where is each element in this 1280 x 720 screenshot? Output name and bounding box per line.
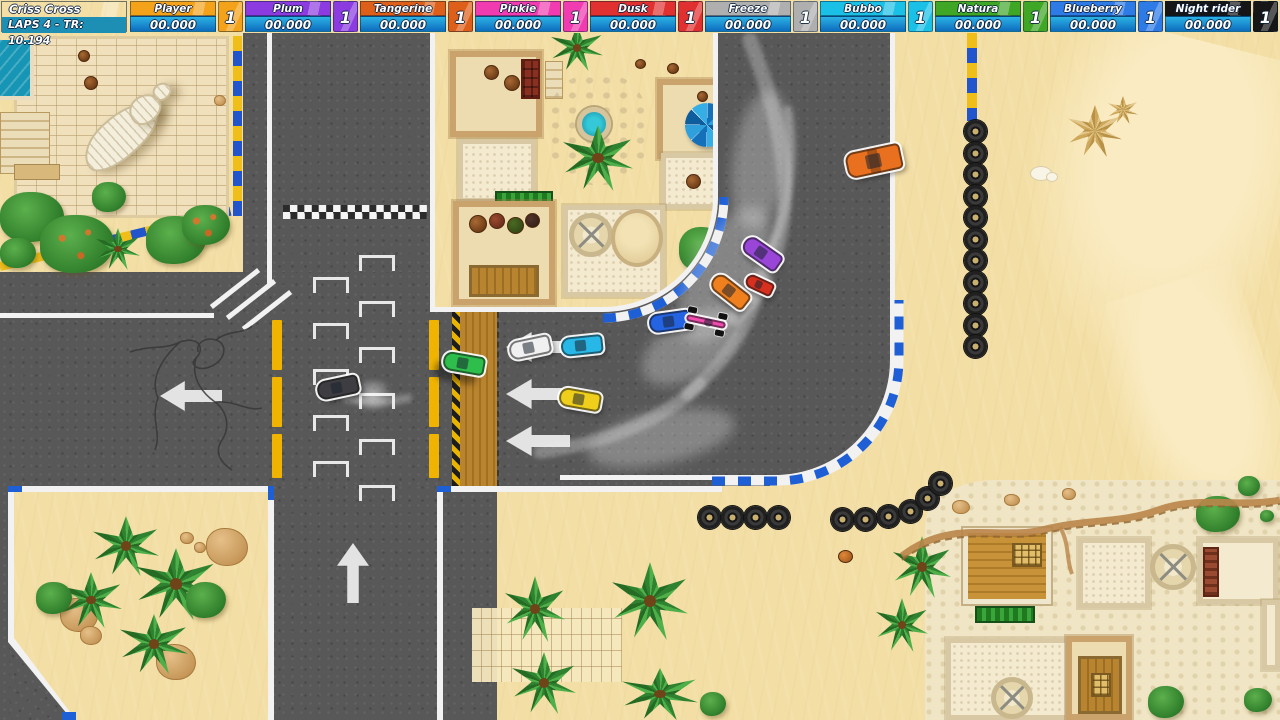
player-lap: 1: [1023, 1, 1048, 32]
player-name: Pinkie: [475, 1, 561, 16]
player-time: 00.000: [1165, 16, 1251, 32]
player-badge: Bubbo 00.000 1: [820, 1, 933, 32]
asphalt-cracks: [130, 326, 262, 470]
player-name: Dusk: [590, 1, 676, 16]
overlay-graphics: [0, 0, 1280, 720]
player-badge: Night rider 00.000 1: [1165, 1, 1278, 32]
player-badge: Dusk 00.000 1: [590, 1, 703, 32]
track-name: Criss Cross: [2, 2, 126, 17]
player-name: Plum: [245, 1, 331, 16]
player-lap: 1: [678, 1, 703, 32]
wheel: [688, 306, 698, 314]
player-badge: Plum 00.000 1: [245, 1, 358, 32]
player-time: 00.000: [590, 16, 676, 32]
track-laps-record: LAPS 4 - TR: 10.194: [2, 17, 126, 33]
car-bubbo: [559, 332, 605, 359]
player-time: 00.000: [1050, 16, 1136, 32]
player-badge: Pinkie 00.000 1: [475, 1, 588, 32]
player-lap: 1: [1253, 1, 1278, 32]
player-lap: 1: [563, 1, 588, 32]
player-badge: Natura 00.000 1: [935, 1, 1048, 32]
player-lap: 1: [448, 1, 473, 32]
dirt-trail: [902, 500, 1280, 574]
car-windshield: [330, 381, 343, 394]
player-badge: Freeze 00.000 1: [705, 1, 818, 32]
player-name: Natura: [935, 1, 1021, 16]
game-stage: Criss Cross LAPS 4 - TR: 10.194 Player 0…: [0, 0, 1280, 720]
player-badge: Tangerine 00.000 1: [360, 1, 473, 32]
player-time: 00.000: [475, 16, 561, 32]
player-lap: 1: [218, 1, 243, 32]
car-windshield: [456, 357, 469, 370]
player-lap: 1: [908, 1, 933, 32]
player-name: Player: [130, 1, 216, 16]
player-lap: 1: [333, 1, 358, 32]
player-lap: 1: [793, 1, 818, 32]
player-time: 00.000: [820, 16, 906, 32]
player-name: Bubbo: [820, 1, 906, 16]
player-badge: Blueberry 00.000 1: [1050, 1, 1163, 32]
player-lap: 1: [1138, 1, 1163, 32]
player-name: Tangerine: [360, 1, 446, 16]
player-name: Freeze: [705, 1, 791, 16]
wheel: [718, 313, 728, 321]
player-name: Blueberry: [1050, 1, 1136, 16]
player-time: 00.000: [360, 16, 446, 32]
player-time: 00.000: [245, 16, 331, 32]
player-time: 00.000: [705, 16, 791, 32]
player-time: 00.000: [130, 16, 216, 32]
race-hud: Criss Cross LAPS 4 - TR: 10.194 Player 0…: [0, 0, 1280, 33]
player-time: 00.000: [935, 16, 1021, 32]
player-badge: Player 00.000 1: [130, 1, 243, 32]
car-windshield: [662, 315, 674, 327]
car-windshield: [572, 393, 585, 406]
car-windshield: [574, 340, 586, 352]
player-name: Night rider: [1165, 1, 1251, 16]
track-info-box: Criss Cross LAPS 4 - TR: 10.194: [1, 1, 127, 32]
car-windshield: [522, 341, 535, 354]
